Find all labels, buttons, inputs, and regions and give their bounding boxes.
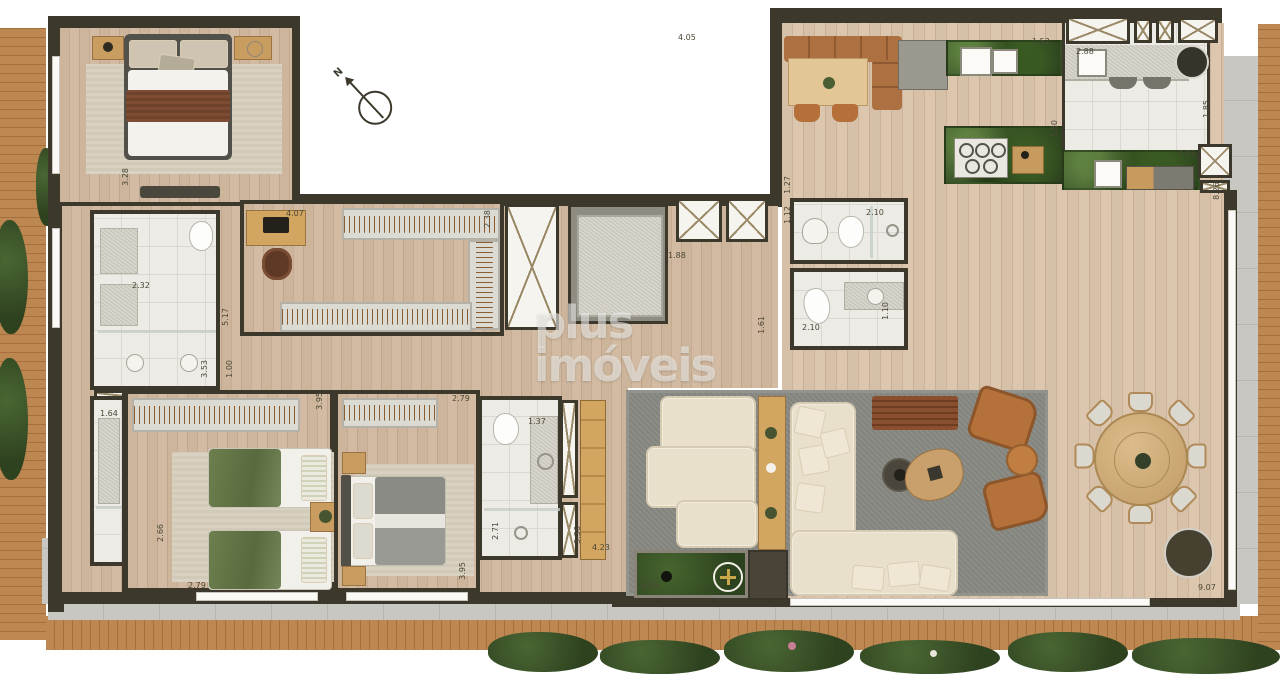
floor-plan: N plus imóveis 4.053.282.325.173.531.004…	[0, 0, 1280, 674]
gourmet-board	[1126, 166, 1194, 190]
closet-rail-top	[342, 208, 500, 240]
dining-table	[1094, 412, 1188, 506]
dimension-label: 2.10	[866, 209, 884, 217]
dimension-label: 1.00	[226, 360, 234, 378]
planter-box-dark	[748, 550, 788, 600]
dimension-label: 2.88	[1076, 48, 1094, 56]
service-window-1	[1066, 16, 1130, 44]
decor-sphere	[661, 571, 672, 582]
pedestal-sink	[802, 218, 828, 244]
desk-chair	[262, 248, 292, 280]
bath-niche	[100, 228, 138, 274]
powder-vanity	[844, 282, 904, 310]
twin-bed-2	[208, 530, 332, 590]
closet-rail-bottom	[280, 302, 472, 332]
room-master-bedroom	[56, 24, 296, 206]
dimension-label: 1.52	[1032, 38, 1050, 46]
nightstand-bedroom3-top	[342, 452, 366, 474]
dimension-label: 2.10	[802, 324, 820, 332]
dimension-label: 1.85	[1203, 100, 1211, 118]
sofa-left-2	[646, 446, 756, 508]
service-window-4	[1178, 17, 1218, 43]
dimension-label: 6.06	[641, 582, 659, 590]
twin-bed-1	[208, 448, 332, 508]
round-basin-table	[1175, 45, 1209, 79]
dining-chair-5	[1128, 504, 1153, 524]
dimension-label: 3.28	[122, 168, 130, 186]
wardrobe-bedroom2	[132, 398, 300, 432]
dimension-label: 3.95	[316, 392, 324, 410]
garden-bottom-1	[488, 632, 598, 672]
garden-bottom-2	[600, 640, 720, 674]
service-window-3	[1156, 18, 1174, 43]
vanity-sink-2	[180, 354, 198, 372]
nightstand-right	[234, 36, 272, 60]
window-living-right	[1228, 210, 1236, 590]
tv-panel-wood	[580, 400, 606, 560]
dimension-label: 2.66	[157, 524, 165, 542]
kitchen-cabinet	[898, 40, 948, 90]
garden-bottom-4	[860, 640, 1000, 674]
breakfast-chair-1	[794, 104, 820, 122]
watermark: plus imóveis	[534, 302, 754, 388]
dimension-label: 1.10	[882, 302, 890, 320]
dimension-label: 3.36	[574, 526, 582, 544]
dimension-label: 5.17	[222, 308, 230, 326]
shower-glass-master	[98, 330, 216, 333]
service-stool-1	[1109, 77, 1137, 89]
cutting-board	[1012, 146, 1044, 174]
bath4-vanity	[530, 416, 558, 504]
window-bedroom3	[346, 592, 468, 601]
dining-centerpiece	[1135, 453, 1151, 469]
room-bedroom-2	[122, 390, 334, 592]
slat-coffee-table	[872, 396, 958, 430]
dimension-label: 8.26	[1213, 182, 1221, 200]
garden-bottom-6	[1132, 638, 1280, 674]
garden-bottom-3	[724, 630, 854, 672]
dimension-label: 3.53	[201, 360, 209, 378]
dimension-label: 1.37	[528, 418, 546, 426]
table-plant	[823, 77, 835, 89]
deck-left	[0, 28, 46, 640]
vanity-sink-1	[126, 354, 144, 372]
toilet-bath4	[493, 413, 519, 445]
room-bathroom-suite2	[790, 198, 908, 264]
bath-niche-2	[100, 284, 138, 326]
dining-chair-7	[1075, 444, 1095, 469]
dimension-label: 1.27	[784, 176, 792, 194]
bed-master	[124, 34, 232, 160]
dimension-label: 9.07	[1198, 584, 1216, 592]
toilet-master	[189, 221, 213, 251]
service-shaft	[1198, 144, 1232, 178]
side-table-tan	[1006, 444, 1038, 476]
tv-console-master	[140, 186, 220, 198]
dimension-label: 4.23	[592, 544, 610, 552]
dimension-label: 1.50	[1051, 120, 1059, 138]
window-master-bath	[52, 228, 60, 328]
bath4-shower-head	[514, 526, 528, 540]
window-bedroom2	[196, 592, 318, 601]
service-window-2	[1134, 18, 1152, 43]
bath4-glass	[484, 508, 560, 511]
living-planter	[634, 550, 748, 598]
dining-chair-1	[1128, 392, 1153, 412]
double-bed	[344, 476, 446, 566]
flower-white	[930, 650, 937, 657]
sofa-left-3	[676, 500, 758, 548]
nightstand-bedroom3-bottom	[342, 566, 366, 586]
deck-right	[1258, 24, 1280, 650]
breakfast-chair-2	[832, 104, 858, 122]
toilet-powder	[801, 286, 834, 327]
dimension-label: 2.53	[1178, 150, 1196, 158]
dimension-label: 2.79	[188, 582, 206, 590]
dining-chair-3	[1187, 444, 1207, 469]
dimension-label: 3.95	[459, 562, 467, 580]
dimension-label: 2.71	[492, 522, 500, 540]
throw-blanket	[126, 90, 230, 122]
flower-pink	[788, 642, 796, 650]
dimension-label: 4.07	[286, 210, 304, 218]
dimension-label: 4.05	[678, 34, 696, 42]
kitchen-island	[944, 126, 1064, 184]
duct-panel-1	[560, 400, 578, 498]
pouf	[1164, 528, 1214, 578]
elevator-shaft-3	[726, 198, 768, 242]
room-powder	[790, 268, 908, 350]
dimension-label: 2.38	[484, 210, 492, 228]
breakfast-table	[788, 58, 868, 106]
dimension-label: 2.79	[452, 395, 470, 403]
plus-marker-icon[interactable]	[713, 562, 743, 592]
north-compass: N	[323, 55, 411, 143]
sofa-console	[758, 396, 786, 550]
window-living-bottom	[790, 598, 1150, 606]
dimension-label: 1.64	[100, 410, 118, 418]
elevator-shaft-2	[676, 198, 722, 242]
dimension-label: 1.61	[758, 316, 766, 334]
dimension-label: 2.32	[132, 282, 150, 290]
service-stool-2	[1143, 77, 1171, 89]
wardrobe-bedroom3	[342, 398, 438, 428]
room-walk-in-closet	[240, 200, 504, 336]
shower-head-icon	[886, 224, 899, 237]
toilet-bath2	[838, 216, 864, 248]
nightstand-left	[92, 36, 124, 60]
dimension-label: 1.12	[784, 206, 792, 224]
cooktop	[954, 138, 1008, 178]
garden-bottom-5	[1008, 632, 1128, 672]
closet-rail-right	[468, 240, 500, 330]
window-master-left	[52, 56, 60, 174]
bath3-niche	[98, 418, 120, 504]
dimension-label: 1.88	[668, 252, 686, 260]
